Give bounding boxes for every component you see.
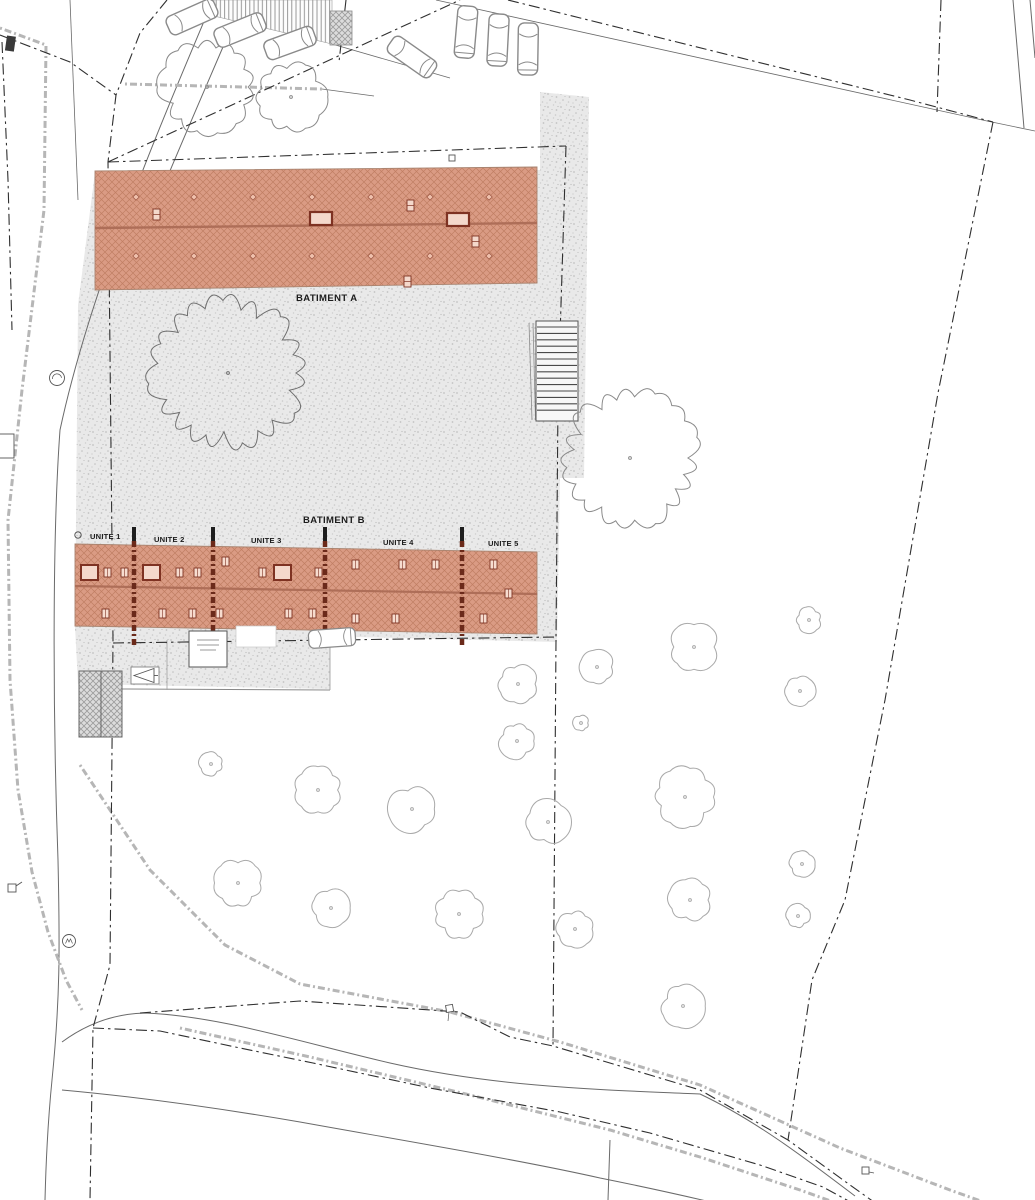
tree xyxy=(214,860,261,906)
hatched-service-boxes xyxy=(79,671,122,737)
note-box xyxy=(189,631,227,667)
roof-dormer xyxy=(274,565,291,580)
tree xyxy=(387,787,434,834)
parked-car xyxy=(454,5,478,59)
small-post-symbol xyxy=(449,155,455,161)
parked-car xyxy=(518,23,539,75)
unit-3-label: UNITE 3 xyxy=(251,536,282,545)
tree xyxy=(256,62,328,132)
junction-box-symbol xyxy=(8,882,22,892)
hatched-square xyxy=(330,11,352,45)
site-plan-page: BATIMENT A BATIMENT B UNITE 1 UNITE 2 UN… xyxy=(0,0,1035,1200)
unit-4-label: UNITE 4 xyxy=(383,538,414,547)
road-edge-top-right xyxy=(1013,0,1024,128)
left-curb-stub xyxy=(70,0,78,200)
roadside-cabinet xyxy=(0,434,14,458)
tree xyxy=(655,766,715,829)
manhole-symbol xyxy=(50,371,65,386)
tree xyxy=(579,649,613,684)
tree xyxy=(198,752,222,776)
road-curb xyxy=(62,1090,715,1200)
roof-dormer xyxy=(81,565,98,580)
tree xyxy=(785,676,817,706)
utility-tail-line xyxy=(322,89,374,96)
tree xyxy=(498,724,534,760)
tree xyxy=(671,623,717,670)
white-patch xyxy=(236,626,276,647)
unit-5-label: UNITE 5 xyxy=(488,539,519,548)
parked-car xyxy=(308,627,356,648)
junction-box-symbol xyxy=(862,1167,874,1174)
unit-2-label: UNITE 2 xyxy=(154,535,185,544)
site-plan-drawing: BATIMENT A BATIMENT B UNITE 1 UNITE 2 UN… xyxy=(0,0,1035,1200)
roof-chimney xyxy=(447,213,469,226)
roof-dormer xyxy=(143,565,160,580)
tree xyxy=(786,903,811,927)
tree xyxy=(661,984,705,1029)
building-a-label: BATIMENT A xyxy=(296,293,358,304)
tree xyxy=(667,878,709,921)
road-curb xyxy=(62,1013,855,1196)
tree xyxy=(312,889,350,928)
ramp-arrow xyxy=(131,667,159,684)
parked-car xyxy=(164,0,220,37)
road-edge-top-right xyxy=(987,121,1035,131)
tree xyxy=(573,715,589,731)
tree xyxy=(789,851,815,878)
roof-chimney xyxy=(310,212,332,225)
tree xyxy=(556,911,593,948)
building-a-roof xyxy=(95,167,537,290)
building-b-label: BATIMENT B xyxy=(303,515,365,526)
tree xyxy=(526,798,572,843)
parked-car xyxy=(487,14,510,67)
tree xyxy=(436,890,484,938)
tree xyxy=(295,766,340,813)
unit-1-label: UNITE 1 xyxy=(90,532,121,541)
driveway-edge xyxy=(608,1140,610,1200)
tree xyxy=(498,665,537,704)
road-edge-top-right xyxy=(1030,0,1035,58)
exterior-stairs xyxy=(529,321,578,421)
tree xyxy=(796,607,820,634)
manhole-symbol xyxy=(63,935,76,948)
parked-car xyxy=(385,34,439,80)
